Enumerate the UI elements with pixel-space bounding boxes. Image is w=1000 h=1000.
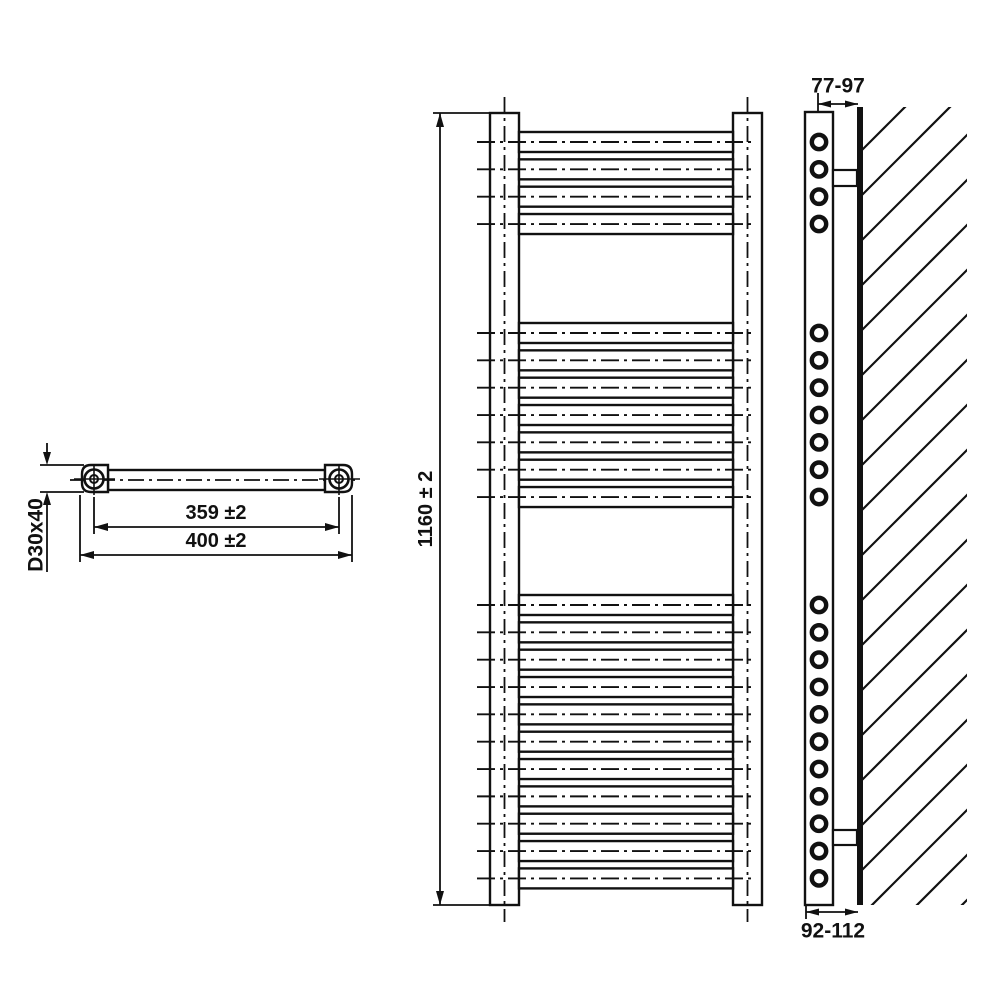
hatch-line (860, 87, 970, 197)
dim-overall-width-label: 400 ±2 (185, 530, 246, 552)
hatch-line (860, 717, 970, 827)
dim-hole-spacing: 359 ±2 (94, 497, 339, 534)
hatch-line (860, 537, 970, 647)
hatch-line (860, 897, 970, 1000)
wall-hatching (860, 0, 970, 1000)
dim-wall-to-center-label: 77-97 (811, 75, 865, 98)
rung-end-circle (812, 680, 826, 694)
hatch-line (860, 492, 970, 602)
hatch-line (860, 177, 970, 287)
rung-end-circle (812, 463, 826, 477)
dim-tube-label: D30x40 (25, 498, 48, 572)
rung-end-circle (812, 652, 826, 666)
hatch-line (860, 762, 970, 872)
rung-end-circle (812, 135, 826, 149)
hatch-line (860, 402, 970, 512)
towel-radiator-technical-drawing: D30x40 359 ±2 400 ±2 (0, 0, 1000, 1000)
rung-end-circle (812, 435, 826, 449)
hatch-line (860, 42, 970, 152)
hatch-line (860, 807, 970, 917)
rung-end-circle (812, 735, 826, 749)
hatch-line (860, 447, 970, 557)
hatch-line (860, 0, 970, 107)
hatch-line (860, 357, 970, 467)
top-view: D30x40 359 ±2 400 ±2 (25, 443, 361, 572)
dim-tube-size: D30x40 (25, 443, 85, 572)
dim-wall-to-center: 77-97 (811, 75, 865, 112)
rung-end-circle (812, 762, 826, 776)
rung-end-circle (812, 598, 826, 612)
lower-wall-bracket (833, 830, 857, 845)
upper-wall-bracket (833, 170, 857, 186)
rung-end-circle (812, 380, 826, 394)
dim-height: 1160 ± 2 (415, 113, 490, 905)
hatch-line (860, 222, 970, 332)
rung-end-circle (812, 707, 826, 721)
dim-wall-to-front: 92-112 (801, 906, 865, 943)
rung-end-circle (812, 625, 826, 639)
dim-wall-to-front-label: 92-112 (801, 920, 865, 943)
dim-height-label: 1160 ± 2 (415, 471, 437, 548)
rung-end-circle (812, 844, 826, 858)
rung-end-circle (812, 871, 826, 885)
rung-end-circle (812, 162, 826, 176)
rung-end-circle (812, 189, 826, 203)
rung-end-circle (812, 408, 826, 422)
hatch-line (860, 672, 970, 782)
rung-end-circle (812, 326, 826, 340)
side-view: 77-97 92-112 (801, 0, 970, 1000)
hatch-line (860, 267, 970, 377)
hatch-line (860, 852, 970, 962)
hatch-line (860, 627, 970, 737)
front-view: 1160 ± 2 (415, 97, 762, 922)
wall-face-line (857, 107, 863, 905)
rung-end-circle (812, 490, 826, 504)
rung-end-circle (812, 217, 826, 231)
hatch-line (860, 582, 970, 692)
hatch-line (860, 312, 970, 422)
dim-hole-spacing-label: 359 ±2 (185, 502, 246, 524)
rung-end-circle (812, 789, 826, 803)
technical-drawing-canvas: D30x40 359 ±2 400 ±2 (0, 0, 1000, 1000)
rung-end-circle (812, 353, 826, 367)
hatch-line (860, 132, 970, 242)
rung-end-circle (812, 817, 826, 831)
